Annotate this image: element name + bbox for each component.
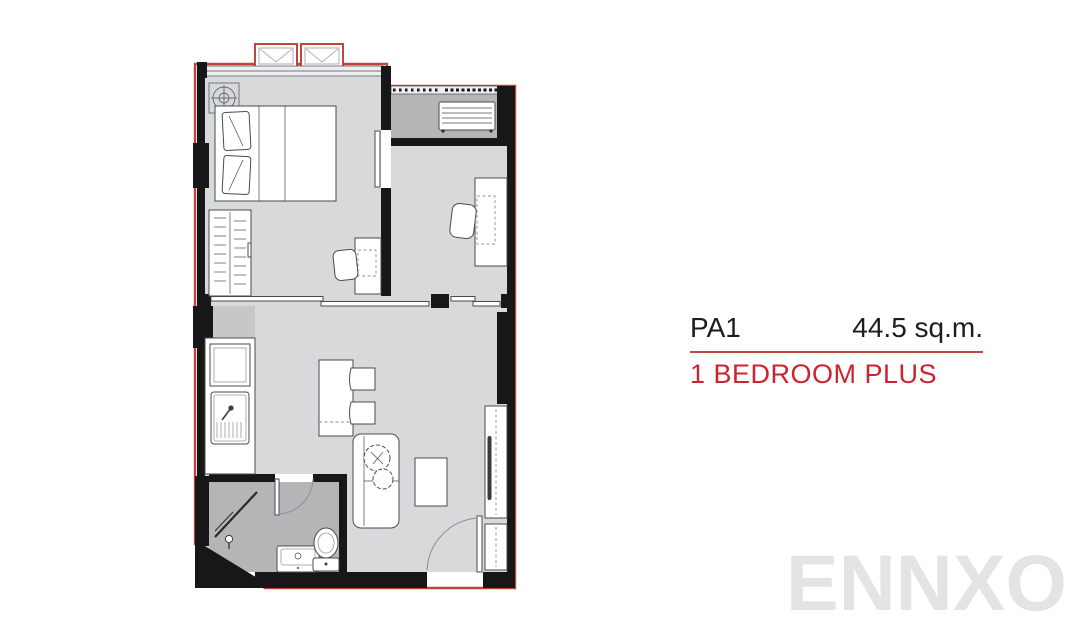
toilet-icon (313, 528, 339, 571)
tv-console-icon (485, 406, 507, 518)
tv-icon (488, 436, 492, 500)
unit-type: 1 BEDROOM PLUS (690, 359, 983, 390)
coffee-table-icon (415, 458, 447, 506)
balcony-railing-icon (391, 86, 507, 94)
dining-chair-icon (350, 402, 376, 424)
shoe-cabinet-icon (485, 524, 507, 570)
ac-condenser-icon (439, 102, 495, 133)
page: PA1 44.5 sq.m. 1 BEDROOM PLUS ENNXO (0, 0, 1080, 640)
unit-code: PA1 (690, 312, 741, 344)
dining-table-icon (319, 360, 353, 436)
floor-plan (193, 38, 538, 613)
study-chair-icon (449, 203, 477, 240)
vanity-chair-icon (332, 249, 358, 281)
pillow-icon (222, 155, 251, 194)
study-desk-icon (475, 178, 507, 266)
kitchen-sink-icon (211, 392, 249, 444)
divider-line (690, 351, 983, 353)
unit-info-panel: PA1 44.5 sq.m. 1 BEDROOM PLUS (690, 312, 983, 390)
bedroom-door-icon (375, 130, 391, 188)
bedroom-window (205, 66, 383, 76)
dining-chair-icon (350, 368, 376, 390)
unit-area: 44.5 sq.m. (852, 312, 983, 344)
ac-ledge-box-left (255, 44, 297, 68)
pillow-icon (222, 111, 251, 150)
vanity-desk-icon (355, 238, 381, 294)
ac-ledge-box-right (301, 44, 343, 68)
fridge-icon (210, 344, 250, 386)
wardrobe-icon (209, 210, 251, 296)
bed-icon (215, 106, 336, 201)
watermark: ENNXO (786, 543, 1067, 622)
